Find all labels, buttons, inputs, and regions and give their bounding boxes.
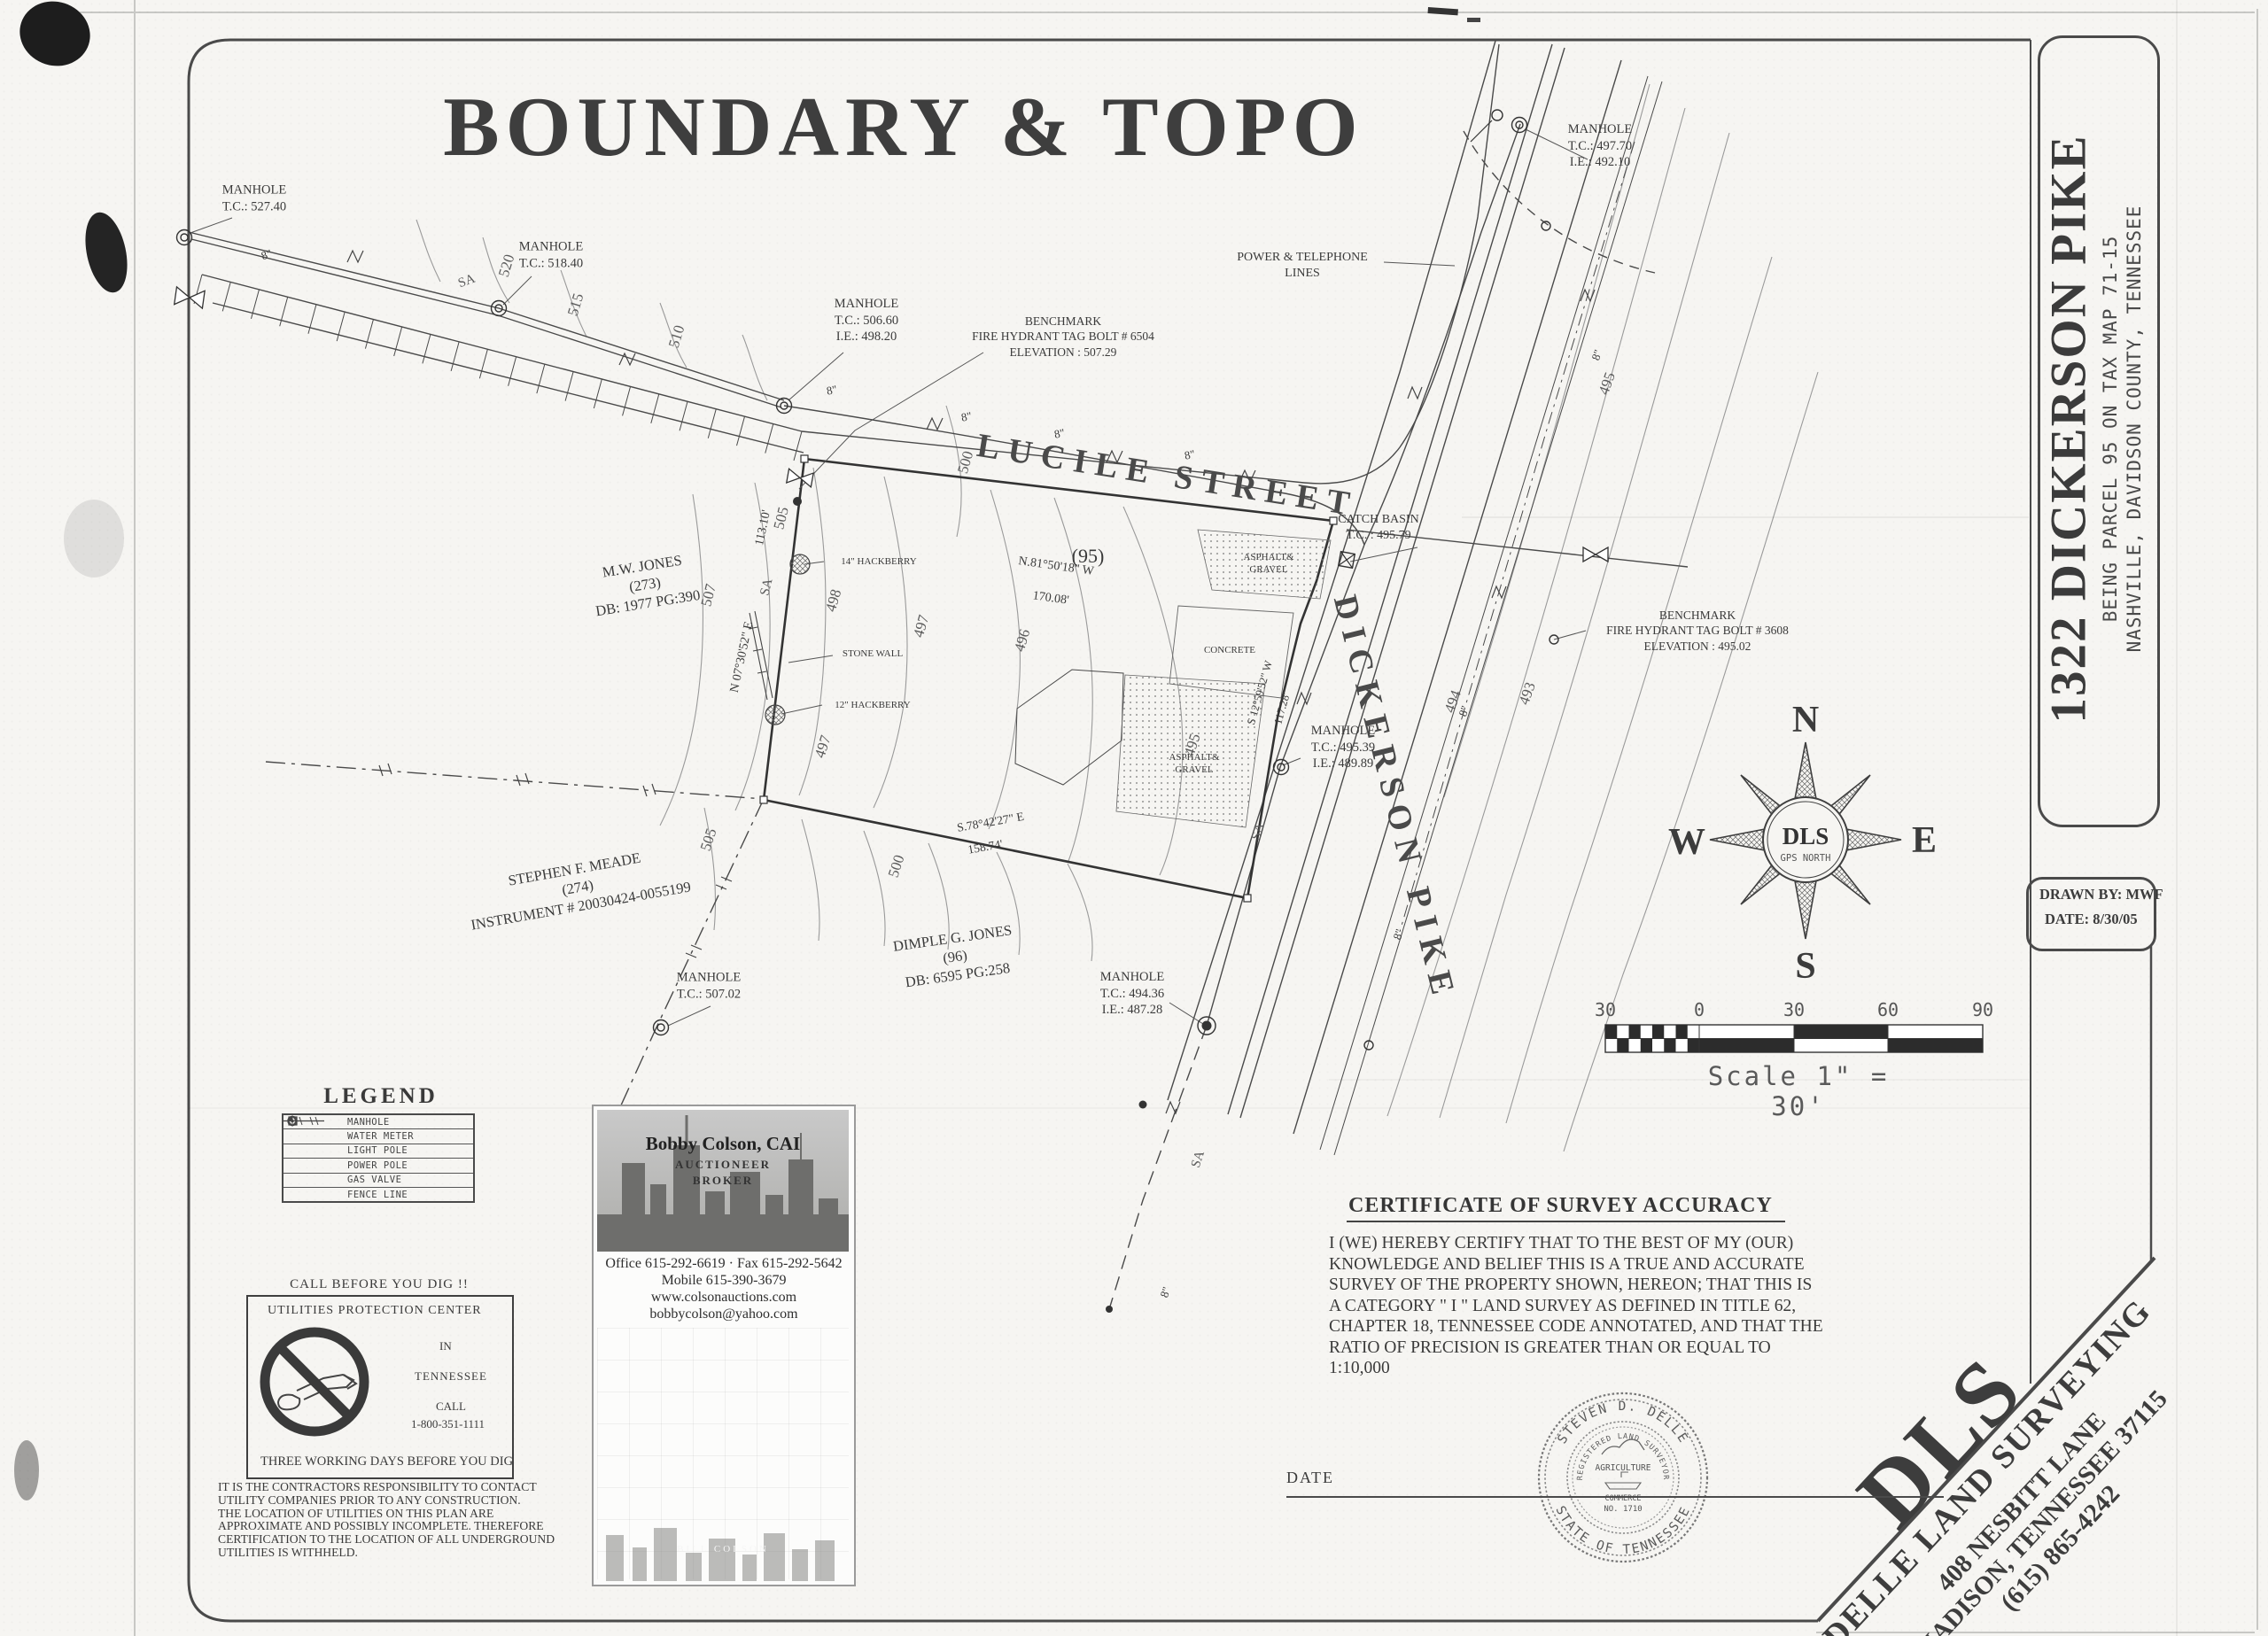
manhole-50702-label: MANHOLE T.C.: 507.02 <box>677 969 742 1002</box>
legend-label: LIGHT POLE <box>347 1145 408 1156</box>
parcel-boundary <box>764 459 1333 898</box>
dig-phone: 1-800-351-1111 <box>411 1417 485 1431</box>
date-label: DATE <box>1286 1469 1334 1487</box>
compass-center-label: DLS <box>1783 823 1829 849</box>
certificate-line: A CATEGORY " I " LAND SURVEY AS DEFINED … <box>1329 1296 1825 1317</box>
legend-label: GAS VALVE <box>347 1175 401 1185</box>
card-footer-image: BILL COLSON <box>597 1508 849 1581</box>
compass-north: N <box>1792 700 1819 740</box>
tree-symbol <box>765 705 785 725</box>
dig-box-title: UTILITIES PROTECTION CENTER <box>268 1304 482 1318</box>
business-card: Bobby Colson, CAI AUCTIONEER BROKER Offi… <box>592 1105 856 1586</box>
legend-row-power-pole: POWER POLE <box>283 1158 473 1172</box>
dig-disclaimer-line: CERTIFICATION TO THE LOCATION OF ALL UND… <box>218 1533 563 1547</box>
parcel-note: BEING PARCEL 95 ON TAX MAP 71-15 <box>2100 236 2121 623</box>
certificate-line: CHAPTER 18, TENNESSEE CODE ANNOTATED, AN… <box>1329 1316 1825 1337</box>
water-meter-symbol <box>793 497 802 506</box>
dig-region-2: TENNESSEE <box>415 1369 487 1384</box>
manhole-symbol <box>654 1020 669 1035</box>
scale-tick: 30 <box>1595 999 1616 1020</box>
legend-row-water-meter: WATER METER <box>283 1128 473 1143</box>
compass-south: S <box>1795 946 1815 987</box>
dig-notice-box: UTILITIES PROTECTION CENTER IN TENNESSEE… <box>246 1295 514 1479</box>
asphalt-gravel-1: ASPHALT& GRAVEL <box>1243 551 1293 576</box>
signature-line <box>1286 1496 1944 1498</box>
card-contact: Office 615-292-6619 · Fax 615-292-5642Mo… <box>594 1255 854 1322</box>
leader-lines <box>188 129 1588 1026</box>
property-address: 1322 DICKERSON PIKE <box>2040 134 2098 723</box>
legend-table: MANHOLEWATER METERLIGHT POLEPOWER POLEGA… <box>282 1113 475 1203</box>
manhole-527-label: MANHOLE T.C.: 527.40 <box>222 182 287 214</box>
catch-basin-label: CATCH BASIN T.C. : 495.79 <box>1338 512 1418 544</box>
parcel-95-label: (95) <box>1072 544 1105 569</box>
certificate-line: RATIO OF PRECISION IS GREATER THAN OR EQ… <box>1329 1337 1825 1379</box>
legend-row-gas-valve: GAS VALVE <box>283 1173 473 1187</box>
tree-symbol <box>790 554 810 574</box>
survey-sheet: DLS GPS NORTH N S E W STEVEN D. DELLE ST… <box>0 0 2268 1636</box>
legend-label: WATER METER <box>347 1131 414 1142</box>
stone-wall-label: STONE WALL <box>843 647 903 660</box>
card-watermark: BILL COLSON <box>597 1544 849 1555</box>
surveyor-seal: STEVEN D. DELLE STATE OF TENNESSEE REGIS… <box>1539 1393 1707 1562</box>
certificate-title: CERTIFICATE OF SURVEY ACCURACY <box>1347 1194 1785 1222</box>
location-note: NASHVILLE, DAVIDSON COUNTY, TENNESSEE <box>2124 205 2145 653</box>
tree-14-hackberry-label: 14" HACKBERRY <box>841 555 916 568</box>
paper-crease <box>1462 516 2029 518</box>
dig-heading: CALL BEFORE YOU DIG !! <box>246 1277 512 1292</box>
compass-east: E <box>1912 820 1937 861</box>
legend-row-fence-line: FENCE LINE <box>283 1187 473 1201</box>
dig-disclaimer: IT IS THE CONTRACTORS RESPONSIBILITY TO … <box>218 1481 563 1560</box>
seal-number: NO. 1710 <box>1604 1505 1642 1514</box>
light-pole-symbol <box>1492 110 1503 120</box>
manhole-symbol <box>1274 760 1289 775</box>
benchmark-6504-label: BENCHMARK FIRE HYDRANT TAG BOLT # 6504 E… <box>972 314 1154 360</box>
flow-ticks <box>347 251 1595 1113</box>
certificate-line: I (WE) HEREBY CERTIFY THAT TO THE BEST O… <box>1329 1233 1825 1254</box>
certificate-body: I (WE) HEREBY CERTIFY THAT TO THE BEST O… <box>1329 1233 1825 1379</box>
manhole-497-label: MANHOLE T.C.: 497.70 I.E.: 492.10 <box>1568 121 1633 171</box>
compass-rose: DLS GPS NORTH N S E W <box>1668 700 1937 987</box>
power-telephone-label: POWER & TELEPHONE LINES <box>1237 250 1368 282</box>
compass-west: W <box>1668 822 1705 863</box>
dig-disclaimer-line: UTILITIES IS WITHHELD. <box>218 1547 563 1560</box>
legend-label: FENCE LINE <box>347 1190 408 1200</box>
scale-tick: 30 <box>1783 999 1805 1020</box>
legend-row-light-pole: LIGHT POLE <box>283 1144 473 1158</box>
drawn-date: DATE: 8/30/05 <box>2045 911 2138 928</box>
legend-title: LEGEND <box>319 1084 443 1109</box>
concrete-label: CONCRETE <box>1204 644 1255 656</box>
drawn-by: DRAWN BY: MWF <box>2039 886 2163 903</box>
certificate-line: KNOWLEDGE AND BELIEF THIS IS A TRUE AND … <box>1329 1254 1825 1275</box>
surface-areas <box>1116 530 1331 827</box>
dig-disclaimer-line: THE LOCATION OF UTILITIES ON THIS PLAN A… <box>218 1508 563 1521</box>
certificate-line: SURVEY OF THE PROPERTY SHOWN, HEREON; TH… <box>1329 1275 1825 1296</box>
gas-valve-symbol <box>787 469 813 487</box>
paper-crease <box>2176 0 2178 1636</box>
dig-disclaimer-line: UTILITY COMPANIES PRIOR TO ANY CONSTRUCT… <box>218 1494 563 1508</box>
manhole-518-label: MANHOLE T.C.: 518.40 <box>519 238 584 271</box>
card-photo: Bobby Colson, CAI AUCTIONEER BROKER <box>597 1110 849 1252</box>
dig-call: CALL <box>436 1400 466 1414</box>
card-contact-line: Mobile 615-390-3679 <box>594 1272 854 1289</box>
scale-tick: 60 <box>1877 999 1899 1020</box>
paper-crease <box>1329 1079 2029 1081</box>
card-role-broker: BROKER <box>597 1174 849 1188</box>
manhole-49436-label: MANHOLE T.C.: 494.36 I.E.: 487.28 <box>1100 969 1165 1019</box>
card-role-auctioneer: AUCTIONEER <box>597 1158 849 1172</box>
card-contact-line: Office 615-292-6619 · Fax 615-292-5642 <box>594 1255 854 1272</box>
dig-disclaimer-line: APPROXIMATE AND POSSIBLY INCOMPLETE. THE… <box>218 1520 563 1533</box>
scale-tick: 0 <box>1694 999 1705 1020</box>
legend-label: MANHOLE <box>347 1117 390 1128</box>
seal-agriculture: AGRICULTURE <box>1596 1463 1651 1473</box>
scale-bar-graphic <box>1605 1025 1983 1052</box>
scale-tick: 90 <box>1972 999 1993 1020</box>
benchmark-3608-label: BENCHMARK FIRE HYDRANT TAG BOLT # 3608 E… <box>1606 608 1789 654</box>
card-contact-line: www.colsonauctions.com <box>594 1289 854 1306</box>
tree-12-hackberry-label: 12" HACKBERRY <box>835 699 910 711</box>
gas-valve-symbol <box>1583 547 1608 562</box>
scale-caption: Scale 1" = 30' <box>1683 1061 1914 1121</box>
dig-region-1: IN <box>439 1339 452 1353</box>
card-name: Bobby Colson, CAI <box>597 1133 849 1155</box>
manhole-506-label: MANHOLE T.C.: 506.60 I.E.: 498.20 <box>835 296 899 345</box>
card-contact-line: bobbycolson@yahoo.com <box>594 1306 854 1322</box>
dig-disclaimer-line: IT IS THE CONTRACTORS RESPONSIBILITY TO … <box>218 1481 563 1494</box>
compass-subtitle: GPS NORTH <box>1781 853 1831 864</box>
page-title: BOUNDARY & TOPO <box>443 78 1364 175</box>
dig-footer: THREE WORKING DAYS BEFORE YOU DIG <box>260 1454 513 1469</box>
legend-label: POWER POLE <box>347 1160 408 1171</box>
